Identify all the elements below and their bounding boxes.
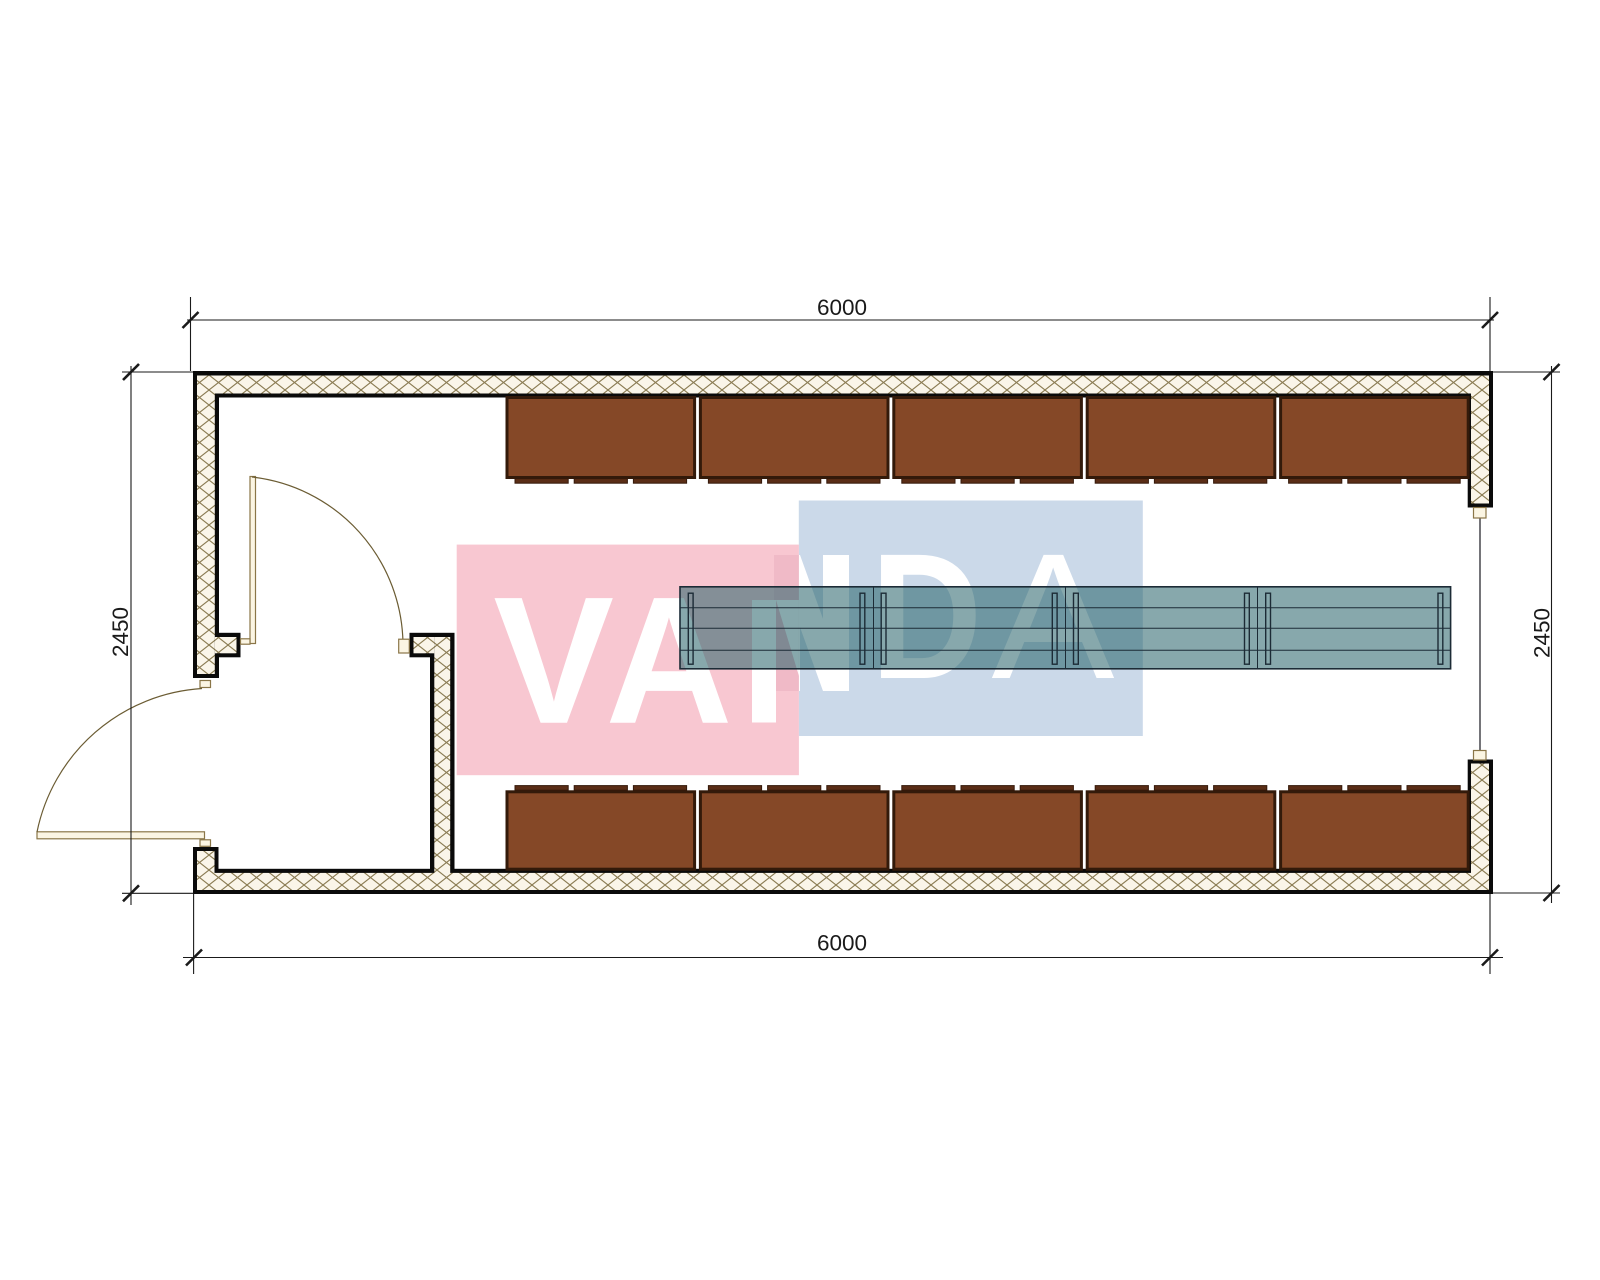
svg-text:6000: 6000	[817, 295, 867, 320]
svg-text:6000: 6000	[817, 931, 867, 956]
svg-text:2450: 2450	[108, 607, 133, 657]
svg-text:V: V	[493, 560, 614, 762]
svg-text:2450: 2450	[1530, 608, 1555, 658]
